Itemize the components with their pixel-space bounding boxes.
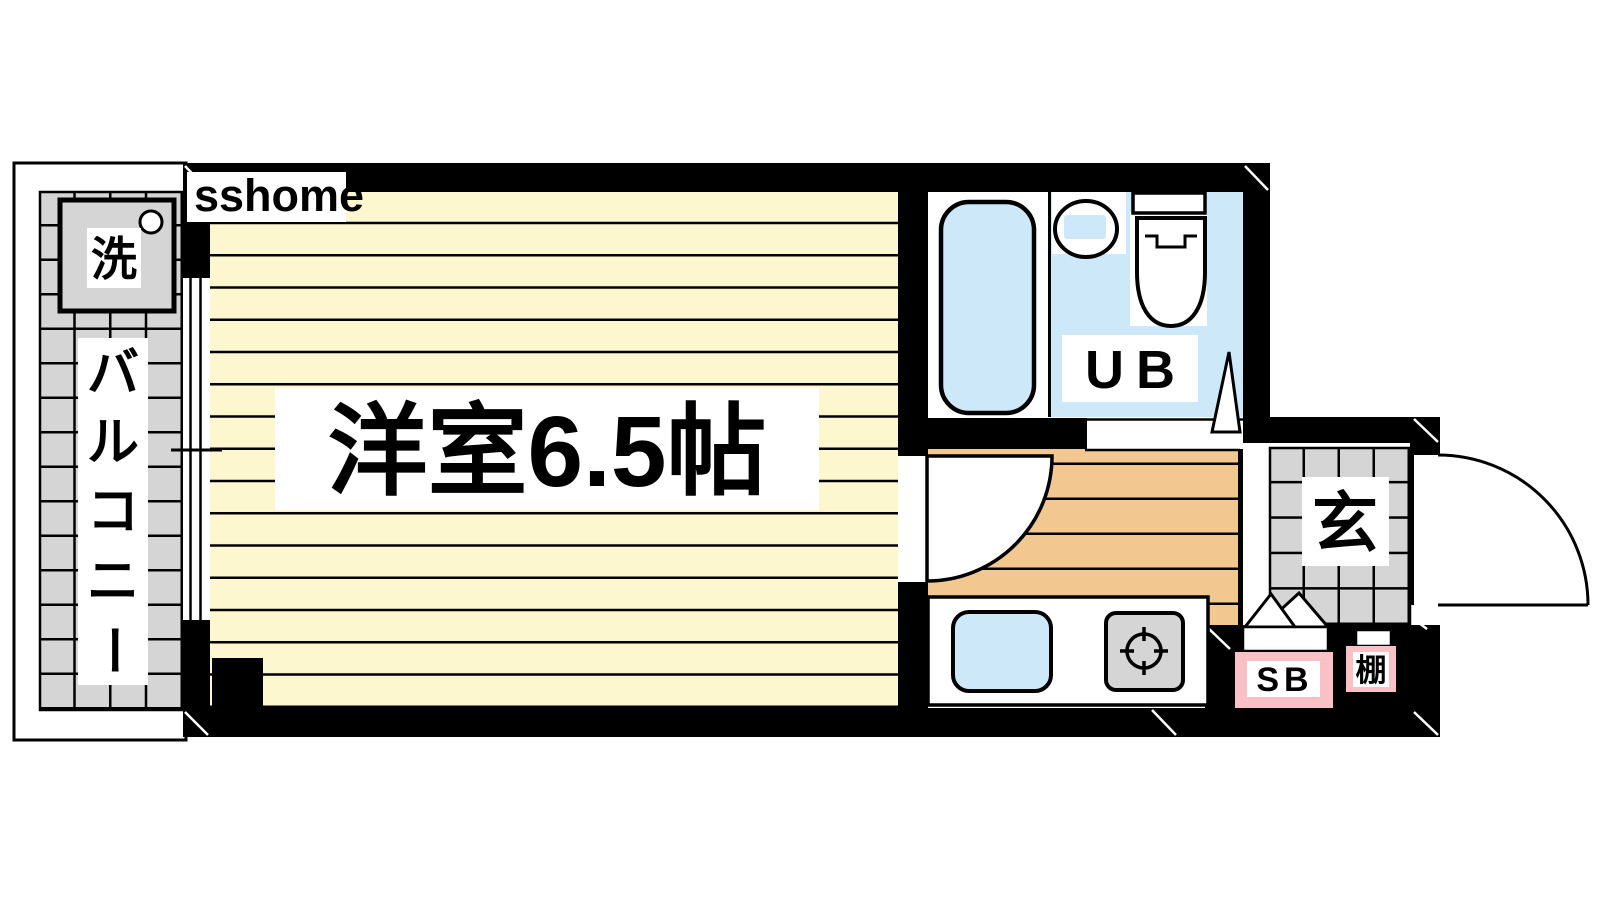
wall-entrance-top	[1243, 417, 1440, 443]
wall-under-bath	[898, 418, 1087, 449]
kitchen-door-opening	[898, 456, 928, 582]
watermark-text: sshome	[194, 170, 364, 221]
kitchen	[898, 449, 1240, 705]
washing-machine-label: 洗	[91, 233, 137, 285]
toilet-bowl	[1137, 218, 1205, 326]
wall-bottom	[183, 708, 1243, 737]
balcony-label-char: バ	[87, 345, 139, 403]
sink-bowl-icon	[1064, 215, 1106, 239]
shelf-body	[1356, 630, 1391, 646]
balcony-label-char: コ	[87, 483, 139, 541]
unit-bath: UB	[928, 192, 1243, 449]
toilet-tank	[1133, 193, 1205, 213]
main-room-label: 洋室6.5帖	[327, 396, 766, 508]
wall-mid-upper	[898, 192, 928, 456]
balcony-label-char: ニ	[87, 553, 139, 611]
wall-mid-lower	[898, 582, 928, 708]
shoe-box-label: SB	[1256, 661, 1313, 699]
floor-plan: 洗 バ ル コ ニ ー	[0, 0, 1600, 900]
wall-kitchen-right	[1238, 447, 1243, 625]
watermark: sshome	[187, 170, 364, 222]
wall-above-door	[1410, 443, 1440, 455]
shoe-box-body	[1243, 627, 1328, 651]
wall-right-upper	[1243, 163, 1270, 418]
balcony: 洗 バ ル コ ニ ー	[14, 163, 186, 740]
balcony-label-char: ー	[83, 624, 141, 676]
balcony-label-char: ル	[87, 414, 139, 472]
stove	[1106, 613, 1183, 690]
wall-pillar	[212, 658, 263, 708]
kitchen-sink	[953, 612, 1051, 691]
front-door-opening	[1414, 455, 1440, 605]
main-room: 洋室6.5帖	[275, 388, 819, 510]
shelf-label: 棚	[1356, 653, 1387, 688]
unit-bath-label: UB	[1085, 340, 1187, 400]
bathtub	[941, 202, 1034, 413]
washing-machine-faucet-icon	[140, 211, 162, 233]
entrance-label: 玄	[1312, 486, 1378, 560]
floor-plan-page: 洗 バ ル コ ニ ー	[0, 0, 1600, 900]
